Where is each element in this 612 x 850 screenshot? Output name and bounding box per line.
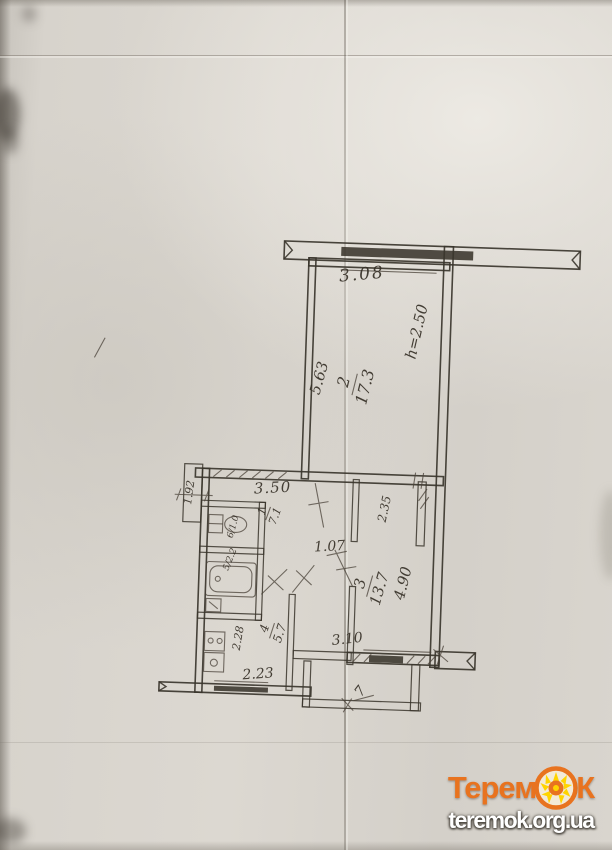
living-room-number: 2: [333, 374, 354, 389]
kitchen-corridor-wall: [286, 594, 295, 690]
kitchen-number: 4: [256, 622, 272, 635]
kitchen-area: 5.7: [270, 622, 289, 645]
dim-ceiling-height: h=2.50: [402, 302, 432, 361]
bath-door-leaf: [261, 568, 287, 595]
top-balcony-slab: [284, 241, 580, 269]
watermark: Терем К teremok.or: [435, 766, 607, 834]
dim-kitchen-width: 2.23: [241, 665, 274, 683]
living-room-label: 2 17.3: [330, 362, 378, 406]
balcony-outline: [302, 661, 422, 711]
watermark-url: teremok.org.ua: [435, 807, 607, 834]
left-outer-wall: [195, 468, 210, 692]
walls: [159, 237, 490, 702]
dim-balcony-top-width: 3.08: [338, 263, 385, 287]
wet-rooms-right-wall: [255, 502, 265, 620]
kitchen-door-leaf: [292, 564, 314, 593]
dim-kitchen-depth: 2.28: [230, 625, 247, 652]
hall-closet-left-wall: [351, 479, 359, 541]
living-bottom-wall: [195, 468, 443, 486]
dim-closet-depth: 2.35: [375, 494, 394, 524]
bedroom-label: 3 13.7: [347, 564, 393, 607]
bedroom-window-glass: [369, 655, 403, 663]
corridor-bottom-wall: [293, 650, 351, 660]
stove-fixture: [204, 631, 225, 672]
watermark-brand-row: Терем К: [435, 766, 607, 810]
living-door-leaf: [308, 483, 330, 528]
dim-bedroom-door: 1.07: [314, 538, 346, 556]
kitchen-window-glass: [214, 686, 268, 693]
watermark-brand-suffix: К: [576, 770, 594, 806]
bedroom-number: 3: [350, 576, 370, 590]
vent-box-fixture: [206, 598, 221, 612]
dim-bedroom-height: 4.90: [390, 564, 416, 602]
dim-duct-width: 1.92: [181, 479, 197, 505]
right-outer-wall: [430, 247, 454, 668]
living-room-area: 17.3: [351, 367, 378, 406]
hall-label: 1 7.1: [253, 501, 284, 527]
dim-bedroom-width: 3.10: [331, 630, 364, 649]
hall-area: 7.1: [266, 506, 284, 527]
scanned-floor-plan-page: 3.08 2 17.3 5.63 h=2.50 3.50 1 7.1 1.92 …: [0, 0, 612, 850]
bathroom-label: 5/2.2: [222, 547, 240, 572]
sun-logo-icon: [534, 766, 578, 810]
dim-hall-width: 3.50: [253, 478, 291, 498]
bath-bottom-wall: [197, 612, 261, 620]
bottom-wall-notch: [159, 682, 166, 691]
dim-living-height: 5.63: [306, 359, 333, 396]
stray-pen-mark: [94, 337, 105, 357]
watermark-brand-prefix: Терем: [448, 770, 536, 806]
floor-plan-drawing: 3.08 2 17.3 5.63 h=2.50 3.50 1 7.1 1.92 …: [0, 0, 612, 850]
bedroom-area: 13.7: [366, 570, 393, 608]
bedroom-window-sill: [363, 650, 431, 652]
